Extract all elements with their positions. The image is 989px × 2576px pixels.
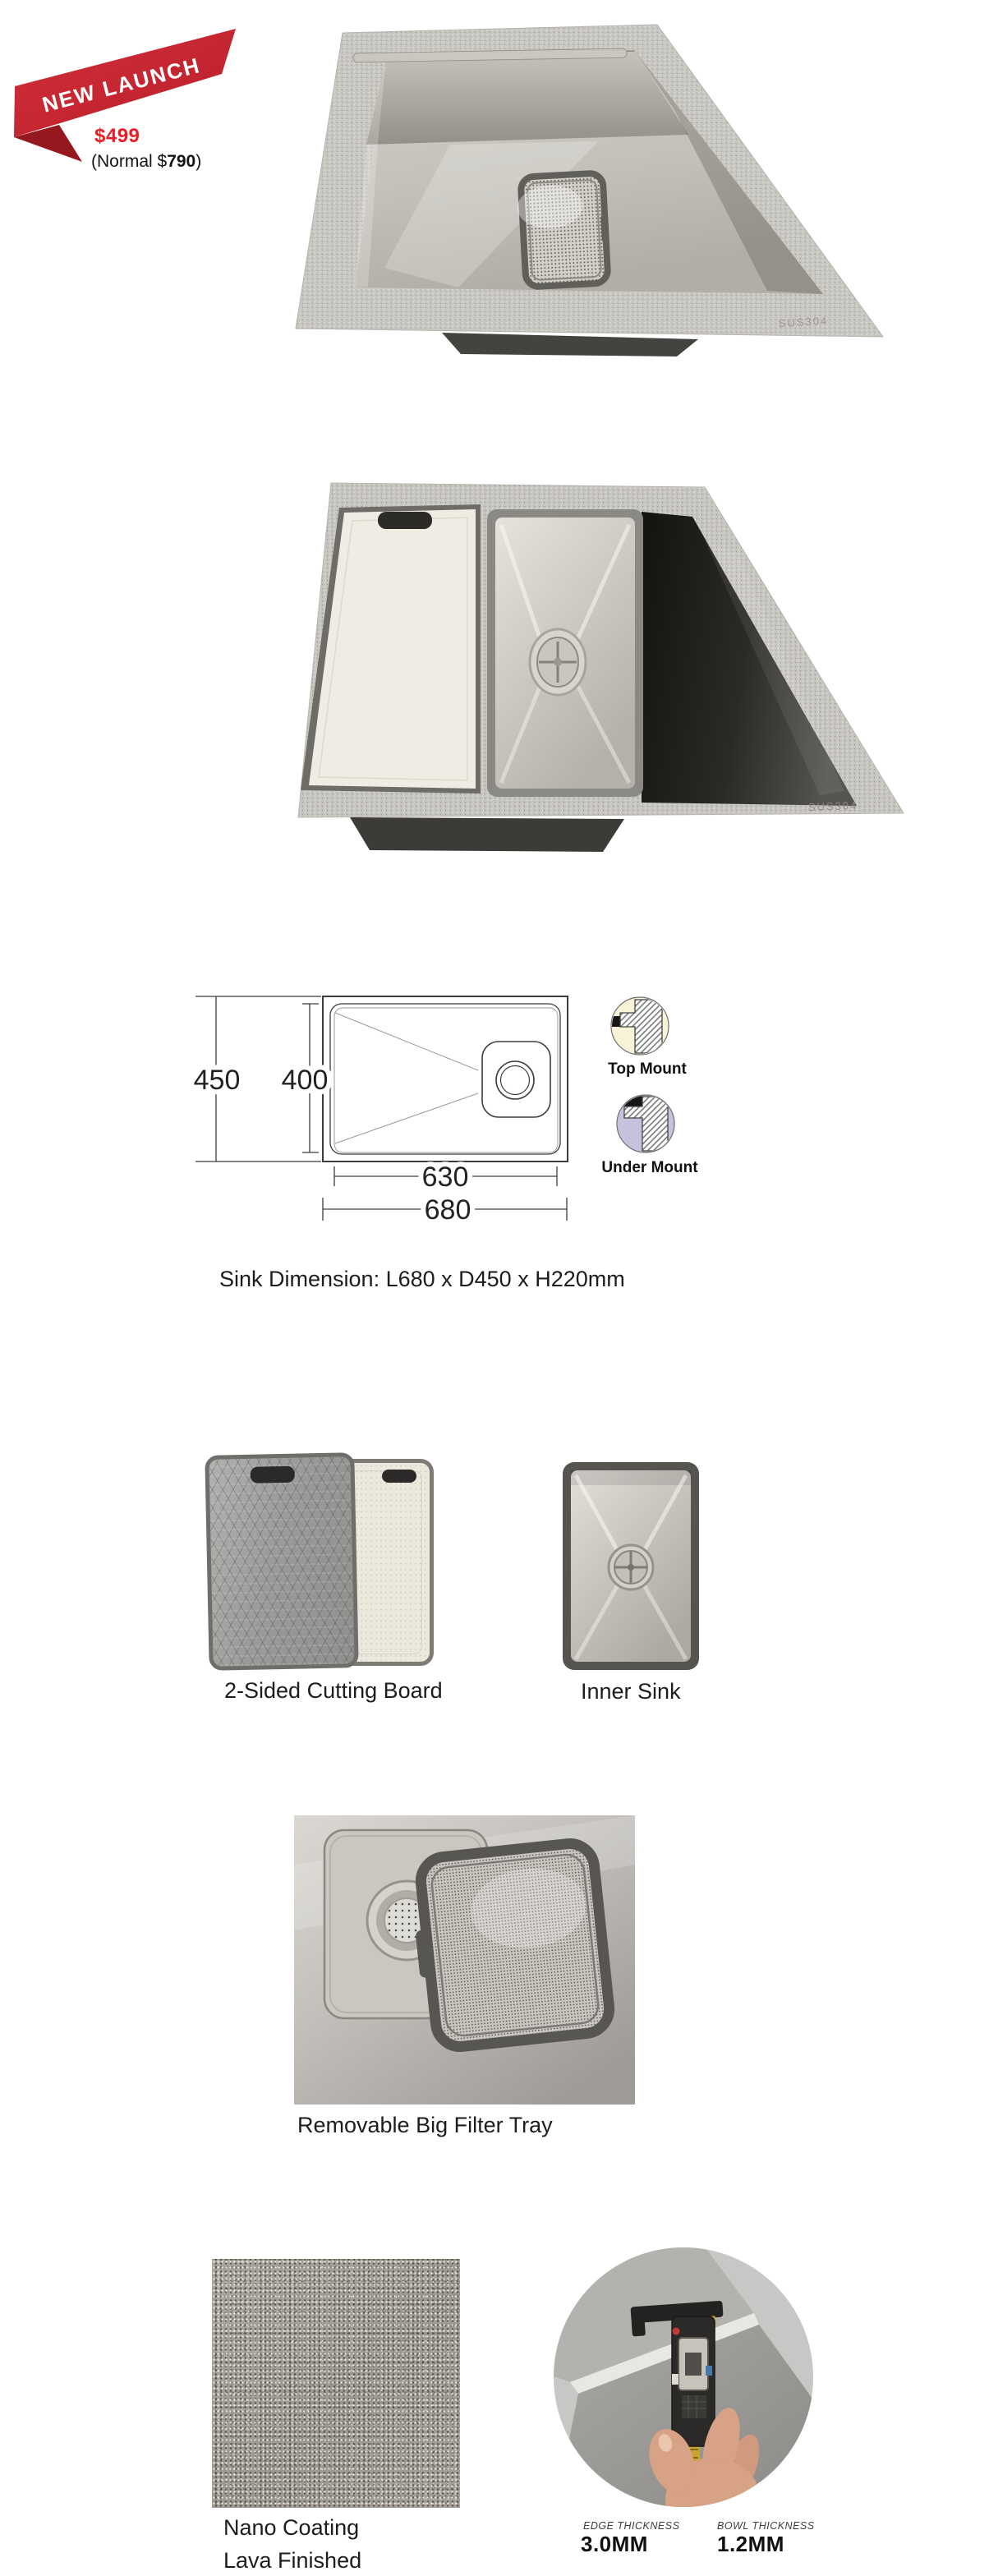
sink-plan-outline: [323, 996, 568, 1161]
steel-grade-engraving: SUS304: [808, 799, 858, 813]
nano-coating-caption: Nano Coating Lava Finished: [223, 2511, 361, 2576]
nano-coating-swatch: [212, 2259, 460, 2508]
cutting-board-gray-side: [205, 1452, 358, 1671]
dim-inner-length: 630: [422, 1161, 469, 1193]
filter-tray-caption: Removable Big Filter Tray: [297, 2113, 553, 2138]
under-mount-icon: [617, 1095, 674, 1152]
inner-sink-caption: Inner Sink: [581, 1679, 681, 1704]
edge-thickness-label: EDGE THICKNESS: [583, 2520, 679, 2532]
sink-accessories-photo: SUS304: [245, 462, 910, 877]
filter-tray-photo: [294, 1815, 635, 2104]
cutting-board-caption: 2-Sided Cutting Board: [224, 1678, 443, 1704]
bowl-thickness-label: BOWL THICKNESS: [717, 2520, 815, 2532]
bowl-thickness-value: 1.2MM: [717, 2532, 784, 2557]
normal-price-value: 790: [167, 152, 195, 171]
inner-sink-in-sink: [487, 509, 643, 797]
filter-tray-in-sink: [516, 172, 612, 287]
product-info-sheet: NEW LAUNCH $499 (Normal $790): [0, 0, 989, 2576]
dim-inner-depth: 400: [282, 1065, 329, 1096]
promo-price: $499: [94, 125, 140, 148]
edge-thickness-value: 3.0MM: [581, 2532, 648, 2557]
normal-price-prefix: (Normal $: [91, 152, 167, 171]
mesh-basket: [408, 1842, 612, 2050]
top-mount-icon: [611, 997, 669, 1055]
sink-dimension-note: Sink Dimension: L680 x D450 x H220mm: [219, 1267, 625, 1292]
sink-back-wall: [366, 51, 688, 145]
normal-price-suffix: ): [195, 152, 201, 171]
board-handle-slot: [378, 512, 432, 529]
drain-recess: [482, 1042, 550, 1117]
nano-coating-caption-line1: Nano Coating: [223, 2511, 361, 2544]
dimension-diagram: 450 400 630 680 Top Mount Under Mount: [181, 982, 723, 1228]
dim-overall-length: 680: [425, 1194, 471, 1226]
sink-pedestal: [350, 817, 624, 852]
sink-pedestal: [442, 333, 698, 356]
main-sink-photo: SUS304: [245, 5, 898, 360]
caliper-measurement-photo: [552, 2246, 815, 2509]
under-mount-label: Under Mount: [601, 1159, 698, 1176]
top-mount-label: Top Mount: [608, 1060, 687, 1078]
board-handle-slot: [251, 1466, 295, 1483]
board-handle-slot: [382, 1470, 416, 1483]
dim-overall-depth: 450: [194, 1065, 241, 1096]
nano-coating-caption-line2: Lava Finished: [223, 2544, 361, 2576]
steel-grade-engraving: SUS304: [778, 315, 828, 329]
normal-price: (Normal $790): [91, 152, 201, 172]
inner-sink-figure: [561, 1460, 701, 1672]
